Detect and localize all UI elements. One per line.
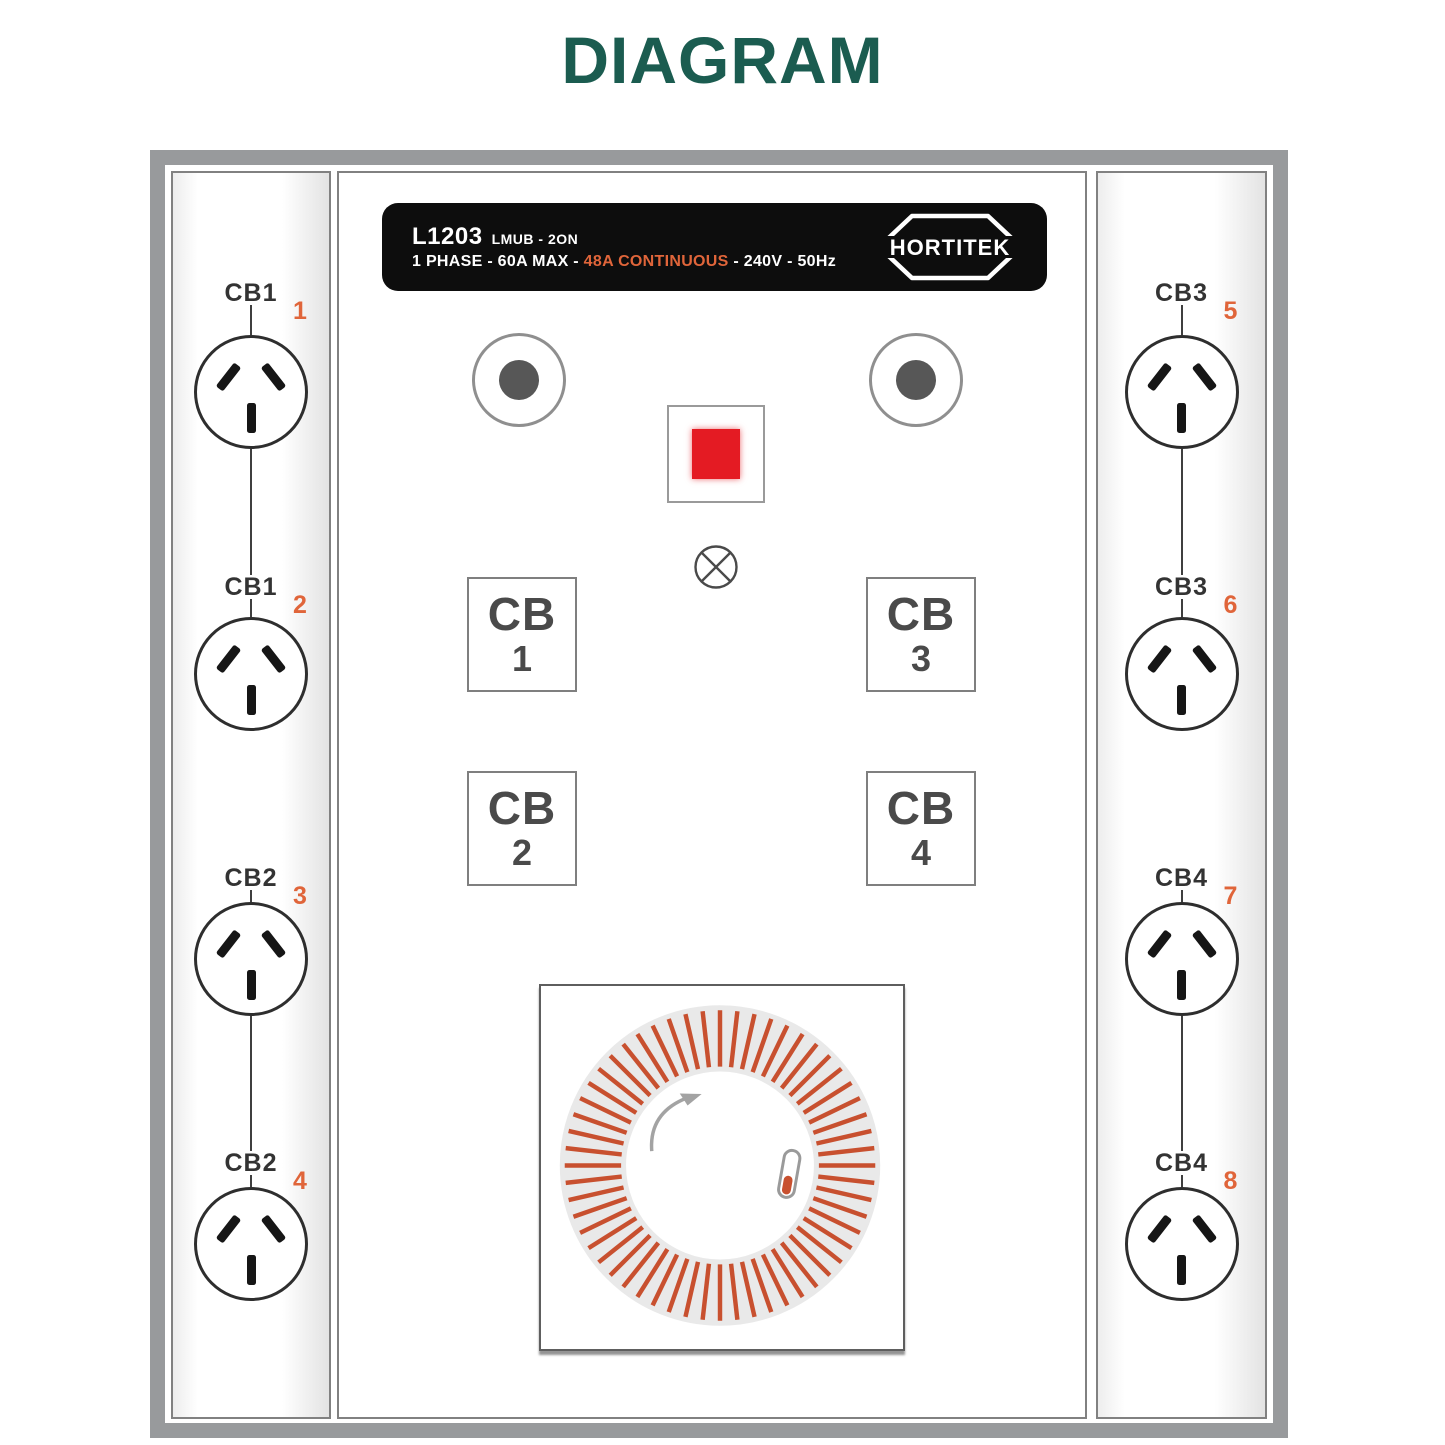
model-variant: LMUB - 2ON: [492, 231, 579, 247]
power-socket-4[interactable]: [194, 1187, 308, 1301]
device-label-text: L1203LMUB - 2ON 1 PHASE - 60A MAX - 48A …: [412, 224, 836, 271]
breaker-number: 3: [868, 641, 974, 677]
socket-pin-earth: [1177, 1255, 1186, 1285]
socket-pin-right: [1191, 1214, 1217, 1243]
indicator-dot: [499, 360, 539, 400]
indicator-light-left: [472, 333, 566, 427]
circuit-breaker-cb1[interactable]: CB 1: [467, 577, 577, 692]
hortitek-logo: HORTITEK: [875, 210, 1025, 284]
outlet-cb-label: CB4: [1155, 1151, 1208, 1176]
circuit-breaker-cb4[interactable]: CB 4: [866, 771, 976, 886]
rotation-arrow-icon: [652, 1098, 688, 1151]
lamp-symbol-icon: [693, 544, 739, 590]
controller-frame: CB1 1 CB1 2: [150, 150, 1288, 1438]
indicator-light-right: [869, 333, 963, 427]
socket-pin-left: [1146, 1214, 1172, 1243]
device-label: L1203LMUB - 2ON 1 PHASE - 60A MAX - 48A …: [382, 203, 1047, 291]
breaker-number: 4: [868, 835, 974, 871]
indicator-dot: [896, 360, 936, 400]
circuit-breaker-cb2[interactable]: CB 2: [467, 771, 577, 886]
spec-text: - 240V - 50Hz: [729, 253, 836, 270]
breaker-label: CB: [868, 785, 974, 831]
outlet-number: 4: [293, 1169, 307, 1194]
outlet-cb-label: CB2: [224, 1151, 277, 1176]
outlet-number: 8: [1224, 1169, 1238, 1194]
page-title: DIAGRAM: [0, 22, 1445, 98]
diagram-page: DIAGRAM CB1 1 CB1 2: [0, 0, 1445, 1445]
red-power-button[interactable]: [692, 429, 740, 479]
socket-pin-earth: [247, 1255, 256, 1285]
breaker-label: CB: [868, 591, 974, 637]
breaker-label: CB: [469, 785, 575, 831]
brand-text: HORTITEK: [890, 235, 1010, 260]
spec-highlight: 48A CONTINUOUS: [584, 253, 729, 270]
rotation-arrow-head: [680, 1087, 704, 1106]
spec-text: 1 PHASE - 60A MAX -: [412, 253, 584, 270]
socket-pin-left: [216, 1214, 242, 1243]
breaker-number: 1: [469, 641, 575, 677]
power-button-housing: [667, 405, 765, 503]
breaker-number: 2: [469, 835, 575, 871]
wire-connector: [250, 1016, 252, 1151]
right-outlet-panel: CB3 5 CB3 6: [1096, 171, 1267, 1419]
timer-dial-housing: [539, 984, 905, 1351]
left-outlet-panel: CB1 1 CB1 2: [171, 171, 331, 1419]
power-socket-8[interactable]: [1125, 1187, 1239, 1301]
breaker-label: CB: [469, 591, 575, 637]
socket-pin-right: [261, 1214, 287, 1243]
wire-connector: [1181, 1016, 1183, 1151]
outlet-group-4: CB2 4: [173, 173, 329, 1417]
model-number: L1203: [412, 223, 483, 250]
dial-pointer: [777, 1149, 801, 1198]
circuit-breaker-cb3[interactable]: CB 3: [866, 577, 976, 692]
timer-dial[interactable]: [541, 986, 899, 1345]
outlet-group-8: CB4 8: [1098, 173, 1265, 1417]
main-control-panel: L1203LMUB - 2ON 1 PHASE - 60A MAX - 48A …: [337, 171, 1087, 1419]
